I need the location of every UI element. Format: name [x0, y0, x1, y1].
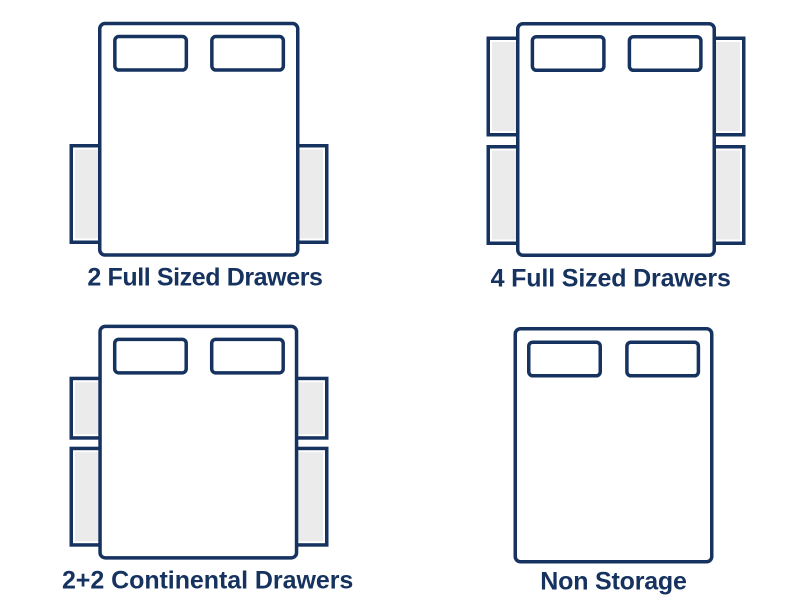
- svg-text:Non Storage: Non Storage: [540, 568, 687, 596]
- svg-text:2 Full Sized Drawers: 2 Full Sized Drawers: [87, 264, 322, 292]
- svg-text:4 Full Sized Drawers: 4 Full Sized Drawers: [491, 265, 731, 293]
- svg-text:2+2 Continental Drawers: 2+2 Continental Drawers: [62, 567, 353, 595]
